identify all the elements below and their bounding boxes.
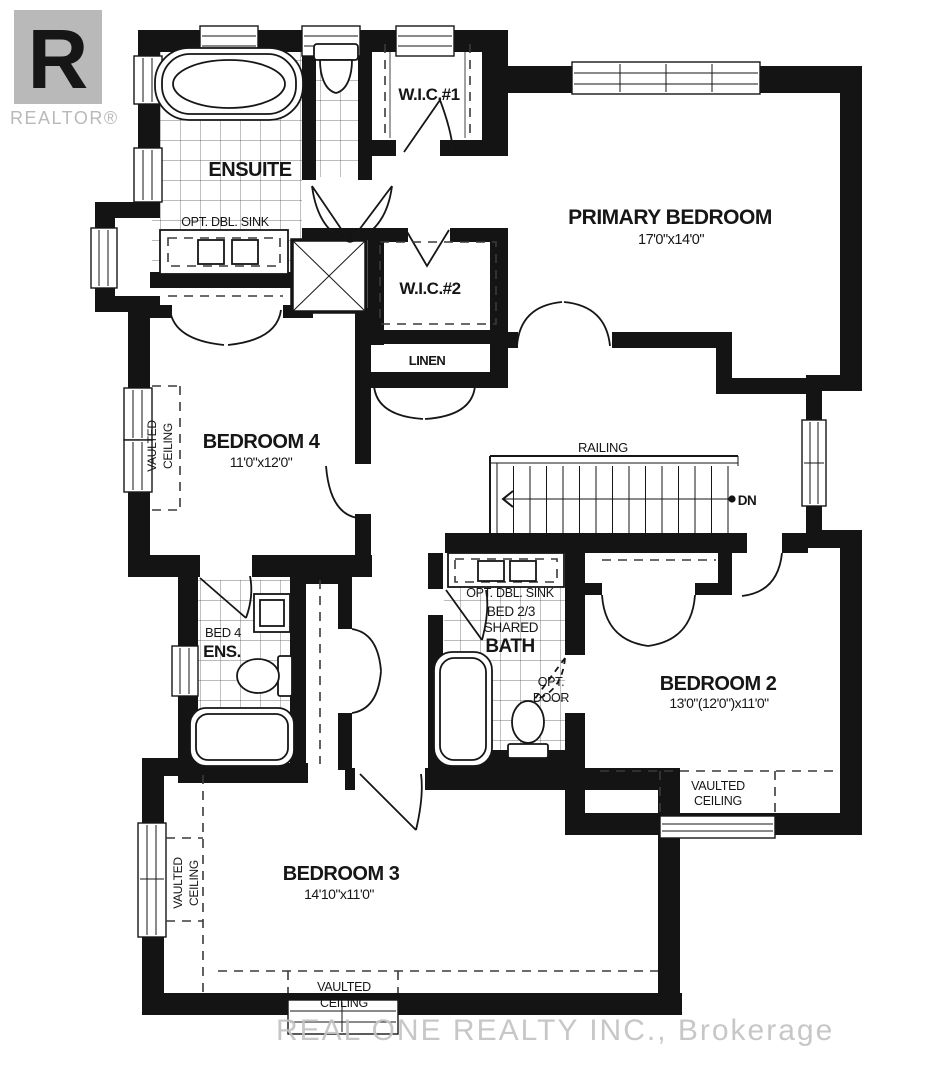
label-shared-bath: BATH — [485, 636, 534, 657]
label-linen: LINEN — [409, 353, 446, 368]
label-bedroom3-vaulted: VAULTED — [317, 980, 371, 994]
label-bedroom3: BEDROOM 3 — [283, 863, 400, 885]
door-swing — [517, 302, 610, 346]
window — [572, 62, 760, 94]
window — [396, 26, 454, 56]
dims-bedroom4: 11'0"x12'0" — [230, 454, 293, 470]
ensuite-bathtub — [155, 48, 303, 120]
closet-doors — [352, 629, 381, 713]
label-bath-opt-sink: OPT. DBL. SINK — [466, 586, 554, 600]
floor-plan-page: ENSUITE OPT. DBL. SINK W.I.C.#1 W.I.C.#2… — [0, 0, 937, 1089]
label-railing: RAILING — [578, 440, 628, 455]
closet-doors — [602, 595, 695, 646]
label-bedroom3-vaulted-left: CEILING — [187, 860, 201, 906]
window — [172, 646, 198, 696]
stairs — [490, 456, 738, 533]
door-swing — [360, 774, 422, 830]
window — [660, 816, 775, 838]
label-bed4-ens: BED 4 — [205, 625, 241, 640]
label-wic1: W.I.C.#1 — [398, 85, 459, 104]
label-ensuite-opt-sink: OPT. DBL. SINK — [181, 215, 269, 229]
bed4-ens-sink — [254, 594, 290, 632]
label-opt-door: OPT. — [538, 675, 565, 689]
label-opt-door: DOOR — [533, 691, 570, 705]
floor-plan: ENSUITE OPT. DBL. SINK W.I.C.#1 W.I.C.#2… — [0, 0, 937, 1089]
label-shared-bath: SHARED — [484, 620, 539, 635]
realtor-logo-letter: R — [28, 12, 89, 106]
label-ensuite: ENSUITE — [208, 159, 291, 181]
label-wic2: W.I.C.#2 — [399, 279, 460, 298]
dims-primary-bedroom: 17'0"x14'0" — [638, 232, 704, 248]
label-bedroom2-vaulted: CEILING — [694, 794, 742, 808]
stair-direction-arrow — [503, 491, 736, 507]
bath-bathtub — [434, 652, 492, 766]
label-bedroom4-vaulted: VAULTED — [145, 420, 159, 472]
label-shared-bath: BED 2/3 — [487, 604, 535, 619]
closet-doors — [170, 310, 281, 345]
door-swing — [326, 466, 358, 518]
railing — [490, 456, 738, 533]
realtor-logo: R REALTOR® — [10, 10, 119, 128]
label-bedroom4-vaulted: CEILING — [161, 423, 175, 469]
door-swing — [406, 230, 449, 266]
window — [138, 823, 166, 937]
label-bedroom2: BEDROOM 2 — [660, 673, 777, 695]
label-bedroom2-vaulted: VAULTED — [691, 779, 745, 793]
label-primary-bedroom: PRIMARY BEDROOM — [568, 206, 772, 229]
dims-bedroom3: 14'10"x11'0" — [304, 886, 374, 902]
label-bedroom4: BEDROOM 4 — [203, 431, 321, 453]
label-dn: DN — [738, 493, 757, 508]
ensuite-vanity — [160, 230, 288, 274]
window — [134, 148, 162, 202]
door-swing — [374, 386, 475, 419]
realtor-wordmark: REALTOR® — [10, 108, 119, 128]
bed4-ens-bathtub — [190, 708, 294, 766]
label-bedroom3-vaulted: CEILING — [320, 996, 368, 1010]
vaulted-ceiling-line — [218, 971, 658, 993]
window — [802, 420, 826, 506]
bath-vanity — [448, 553, 564, 587]
label-bed4-ens: ENS. — [203, 642, 241, 661]
bed4-ens-toilet — [237, 656, 292, 696]
watermark-text: REAL ONE REALTY INC., Brokerage — [276, 1014, 834, 1047]
label-bedroom3-vaulted-left: VAULTED — [171, 857, 185, 909]
shower-chase — [292, 240, 366, 312]
dims-bedroom2: 13'0"(12'0")x11'0" — [669, 695, 769, 711]
window — [91, 228, 117, 288]
door-swing — [742, 553, 782, 596]
